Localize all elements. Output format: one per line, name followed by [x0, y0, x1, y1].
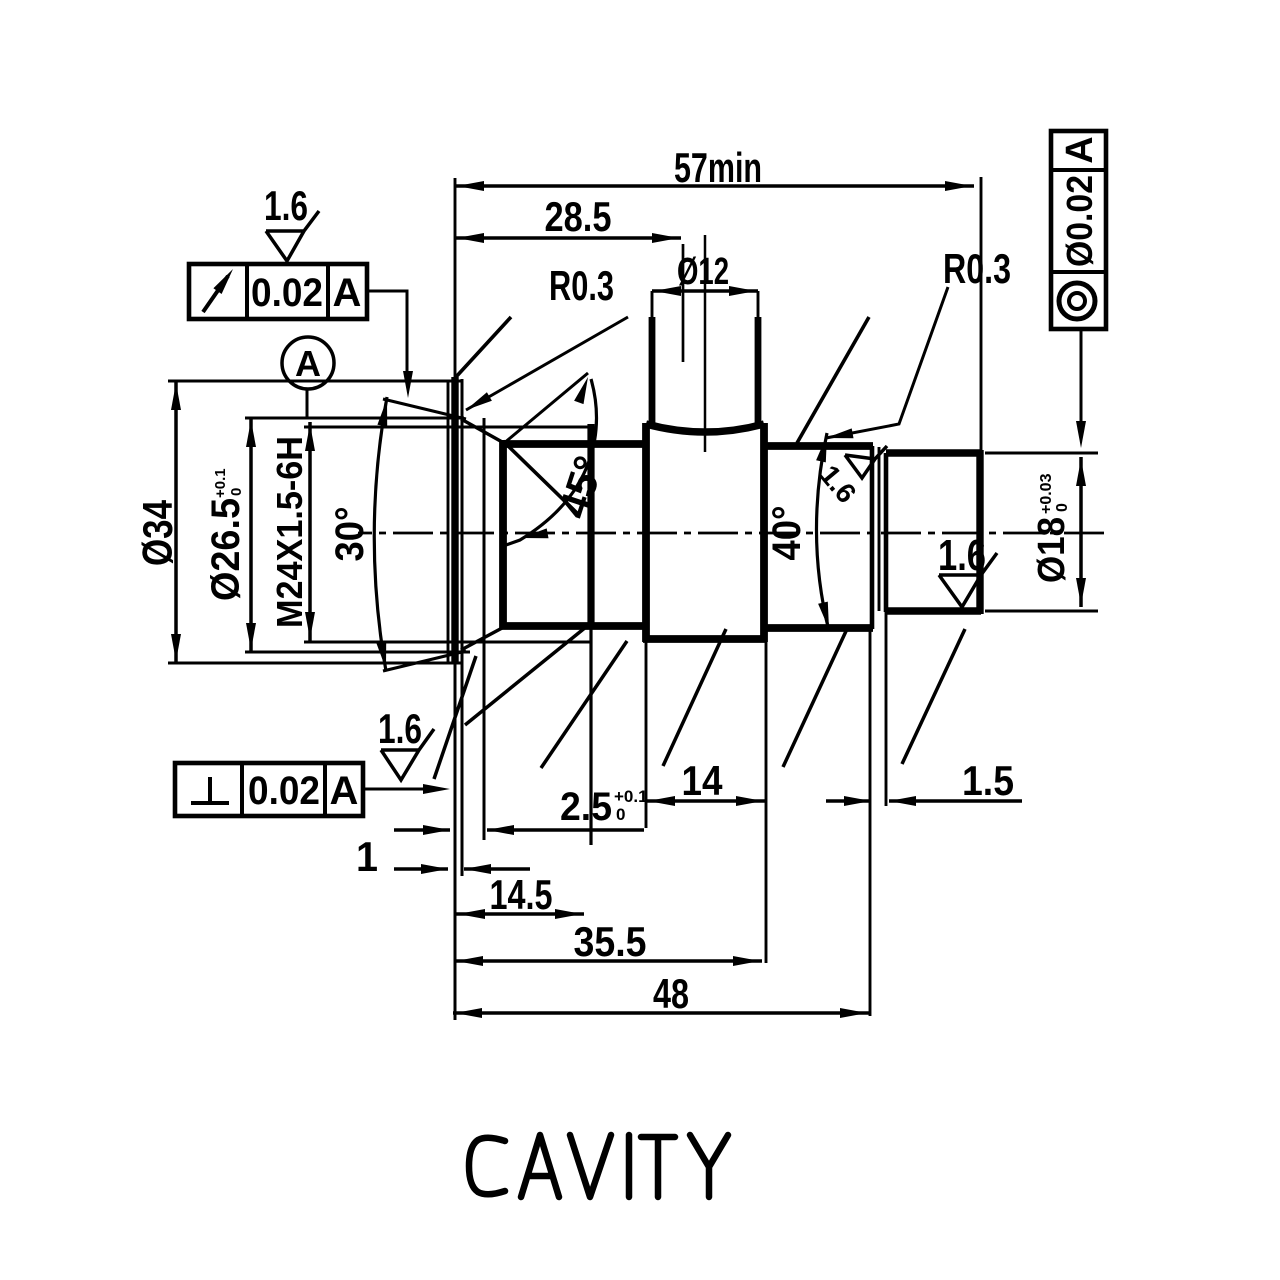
svg-text:Ø26.5: Ø26.5: [204, 498, 248, 601]
svg-text:48: 48: [653, 970, 689, 1017]
svg-text:0: 0: [616, 805, 625, 824]
svg-text:0.02: 0.02: [251, 271, 323, 315]
svg-text:35.5: 35.5: [574, 918, 647, 965]
svg-text:1.6: 1.6: [264, 182, 308, 229]
svg-text:A: A: [295, 343, 321, 384]
svg-text:2.5: 2.5: [560, 785, 612, 829]
svg-text:0: 0: [1054, 503, 1071, 512]
svg-text:1.6: 1.6: [938, 531, 986, 580]
svg-text:14.5: 14.5: [490, 871, 553, 918]
svg-text:+0.03: +0.03: [1038, 473, 1055, 514]
svg-text:40°: 40°: [765, 506, 809, 561]
svg-text:Ø18: Ø18: [1031, 517, 1073, 583]
svg-text:30°: 30°: [328, 507, 372, 562]
svg-text:R0.3: R0.3: [549, 262, 614, 309]
svg-text:1.6: 1.6: [378, 705, 422, 752]
svg-text:0.02: 0.02: [248, 769, 320, 813]
svg-text:M24X1.5-6H: M24X1.5-6H: [269, 436, 310, 628]
svg-text:1: 1: [356, 833, 378, 880]
svg-text:28.5: 28.5: [545, 193, 612, 240]
svg-text:Ø34: Ø34: [134, 499, 181, 566]
svg-text:45°: 45°: [549, 450, 613, 523]
svg-text:A: A: [330, 769, 359, 813]
svg-text:A: A: [333, 271, 362, 315]
svg-text:1.5: 1.5: [962, 757, 1014, 804]
svg-text:Ø0.02: Ø0.02: [1059, 175, 1100, 267]
svg-text:+0.1: +0.1: [212, 468, 229, 498]
svg-text:0: 0: [228, 488, 245, 496]
svg-text:R0.3: R0.3: [943, 245, 1011, 292]
svg-text:+0.1: +0.1: [614, 787, 648, 806]
svg-text:14: 14: [682, 757, 724, 804]
svg-text:A: A: [1059, 136, 1101, 163]
svg-text:57min: 57min: [674, 144, 762, 191]
svg-text:Ø12: Ø12: [677, 251, 729, 293]
